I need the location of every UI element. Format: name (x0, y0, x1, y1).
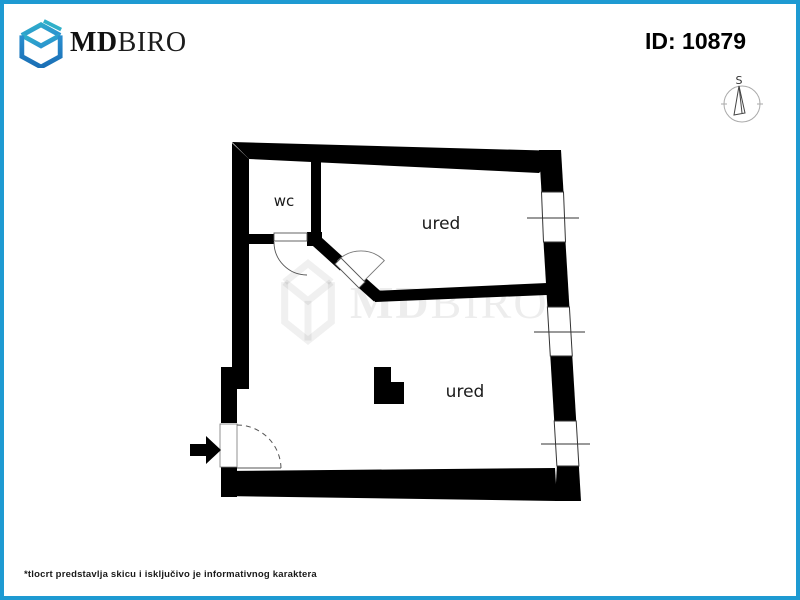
windows (527, 192, 590, 466)
floor-plan: S (4, 4, 800, 600)
wall-interior-horizontal (372, 283, 547, 302)
wall-wc-bottom (244, 234, 274, 244)
doors (190, 233, 384, 469)
wc-door-arc (274, 242, 307, 275)
wall-top (232, 142, 561, 173)
window-1 (527, 192, 579, 242)
wall-wc-divider (311, 160, 321, 244)
wall-bottom (221, 468, 557, 501)
entrance-door-arc (237, 425, 281, 469)
wall-right-b (544, 242, 570, 307)
compass-north-label: S (736, 74, 743, 87)
wall-left-above-door (221, 389, 237, 423)
wall-right-a (539, 150, 564, 192)
entrance-door (220, 424, 281, 469)
floorplan-page: MDBIRO ID: 10879 MDBIRO (0, 0, 800, 600)
room-label-ured-upper: ured (422, 214, 461, 234)
room-label-wc: wc (274, 192, 295, 210)
wall-left-upper (232, 143, 249, 369)
wall-right-d (555, 466, 581, 501)
room-label-ured-lower: ured (446, 382, 485, 402)
wall-right-c (550, 356, 576, 421)
wc-door (274, 233, 307, 275)
wall-left-step (221, 367, 249, 389)
entrance-arrow-icon (190, 436, 221, 464)
window-3 (541, 421, 590, 466)
diagonal-door (335, 251, 384, 288)
compass-icon: S (721, 74, 763, 122)
column-pillar (374, 367, 404, 404)
window-2 (534, 307, 585, 356)
footer-disclaimer: *tlocrt predstavlja skicu i isključivo j… (24, 569, 317, 580)
